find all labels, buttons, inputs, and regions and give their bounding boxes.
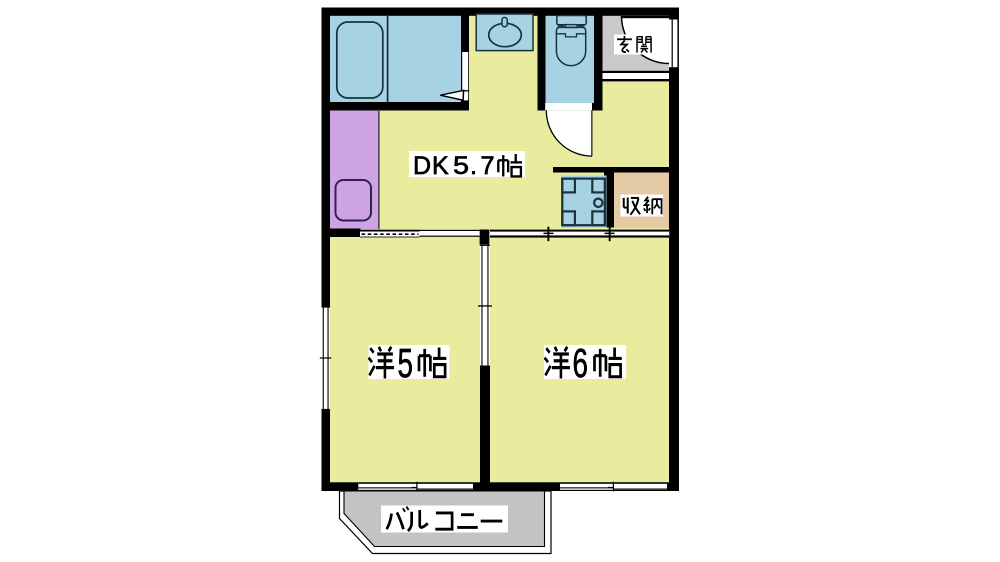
svg-text:.: . — [470, 152, 477, 180]
svg-text:5: 5 — [453, 152, 469, 180]
svg-text:6: 6 — [573, 340, 589, 386]
svg-text:D: D — [413, 152, 431, 180]
svg-text:7: 7 — [481, 152, 495, 180]
svg-text:5: 5 — [398, 340, 414, 386]
svg-text:K: K — [432, 152, 449, 180]
